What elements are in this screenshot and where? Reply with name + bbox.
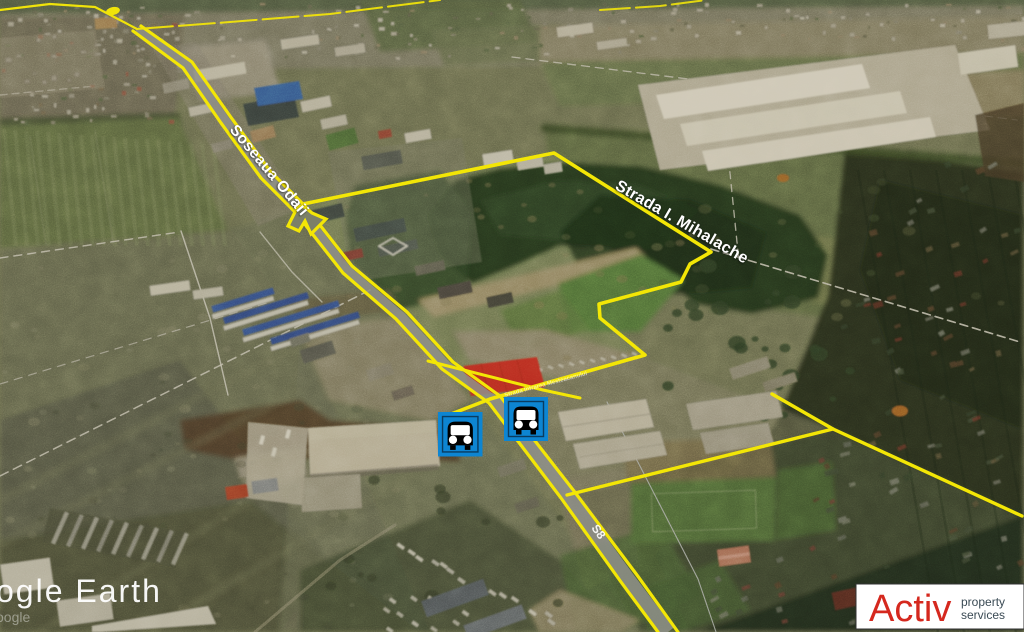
svg-text:services: services <box>961 608 1005 622</box>
svg-text:ogle Earth: ogle Earth <box>0 573 162 609</box>
svg-text:oogle: oogle <box>0 609 30 625</box>
svg-text:property: property <box>961 595 1005 609</box>
svg-text:Activ: Activ <box>869 588 951 630</box>
